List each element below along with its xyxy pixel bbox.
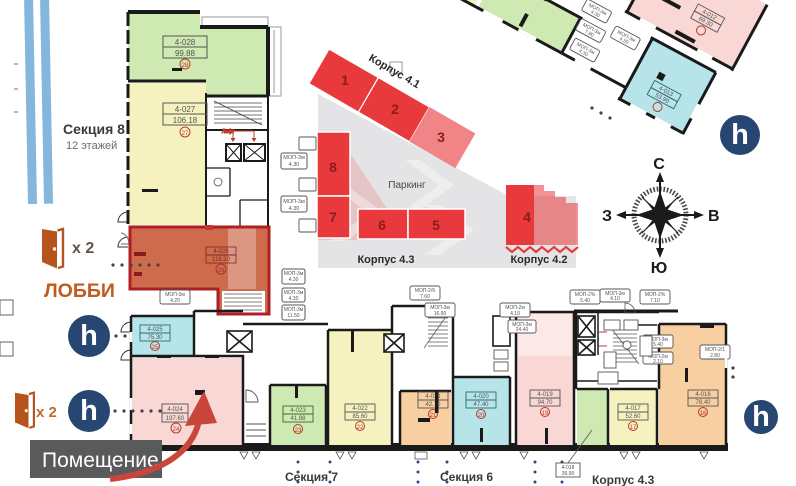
svg-text:4-017: 4-017	[625, 406, 641, 412]
svg-text:7.60: 7.60	[420, 294, 430, 300]
svg-text:25: 25	[152, 345, 159, 351]
svg-text:Лифт: Лифт	[222, 129, 235, 135]
svg-text:197.60: 197.60	[166, 416, 185, 422]
svg-text:С: С	[653, 156, 665, 173]
svg-text:4-020: 4-020	[473, 394, 489, 400]
svg-text:2.10: 2.10	[653, 359, 663, 365]
svg-text:Корпус 4.3: Корпус 4.3	[592, 473, 655, 486]
svg-text:19: 19	[542, 411, 549, 417]
svg-text:106.18: 106.18	[173, 116, 198, 125]
svg-text:МОП-3м: МОП-3м	[283, 199, 305, 205]
svg-text:5.40: 5.40	[580, 298, 590, 304]
svg-text:99.88: 99.88	[175, 49, 196, 58]
svg-text:х 2: х 2	[36, 404, 57, 421]
svg-text:х 2: х 2	[72, 240, 94, 257]
svg-text:7: 7	[329, 209, 337, 225]
svg-text:4.30: 4.30	[289, 206, 300, 212]
svg-text:42.10: 42.10	[425, 402, 441, 408]
svg-text:2.80: 2.80	[710, 353, 720, 359]
svg-text:26: 26	[218, 268, 225, 274]
svg-text:4-024: 4-024	[167, 407, 183, 413]
svg-text:23: 23	[295, 428, 302, 434]
svg-text:20: 20	[478, 413, 485, 419]
svg-text:47.40: 47.40	[473, 402, 489, 408]
svg-text:85.60: 85.60	[352, 414, 368, 420]
svg-text:4-025: 4-025	[147, 327, 163, 333]
svg-text:Корпус 4.2: Корпус 4.2	[510, 254, 567, 266]
svg-text:78.40: 78.40	[695, 400, 711, 406]
svg-text:6: 6	[378, 217, 386, 233]
svg-text:4-026: 4-026	[213, 249, 229, 255]
svg-text:27: 27	[182, 131, 189, 137]
svg-text:75.30: 75.30	[147, 335, 163, 341]
svg-text:39.90: 39.90	[562, 471, 575, 477]
svg-text:h: h	[80, 395, 98, 427]
svg-text:41.88: 41.88	[290, 416, 306, 422]
svg-text:4-019: 4-019	[537, 392, 553, 398]
svg-text:Паркинг: Паркинг	[388, 180, 426, 191]
svg-text:24.40: 24.40	[516, 327, 529, 333]
svg-text:4.30: 4.30	[289, 296, 299, 302]
svg-text:11.50: 11.50	[287, 313, 299, 319]
svg-text:Секция 7: Секция 7	[285, 470, 338, 484]
svg-text:5: 5	[432, 217, 440, 233]
svg-text:4: 4	[523, 209, 531, 225]
svg-text:4.30: 4.30	[289, 277, 299, 283]
svg-text:28: 28	[182, 63, 189, 69]
svg-text:4-028: 4-028	[175, 38, 196, 47]
svg-text:94.70: 94.70	[537, 400, 553, 406]
svg-text:7.10: 7.10	[650, 298, 660, 304]
svg-text:4-027: 4-027	[175, 105, 196, 114]
svg-text:h: h	[80, 320, 98, 352]
svg-text:4-022: 4-022	[352, 406, 368, 412]
svg-text:Секция 6: Секция 6	[440, 470, 493, 484]
svg-text:21: 21	[430, 413, 437, 419]
svg-text:3: 3	[437, 129, 445, 145]
svg-text:4.30: 4.30	[289, 162, 300, 168]
svg-text:8: 8	[329, 159, 337, 175]
svg-text:4.10: 4.10	[610, 296, 620, 302]
svg-text:2: 2	[391, 101, 399, 117]
svg-text:52.60: 52.60	[625, 414, 641, 420]
svg-text:4.20: 4.20	[170, 298, 180, 304]
svg-text:h: h	[752, 401, 770, 433]
svg-text:1: 1	[341, 72, 349, 88]
svg-text:Помещение: Помещение	[42, 449, 159, 472]
svg-text:В: В	[708, 208, 720, 225]
svg-text:22: 22	[357, 425, 364, 431]
svg-text:17: 17	[630, 425, 637, 431]
svg-text:16.90: 16.90	[434, 311, 447, 317]
svg-text:Корпус 4.3: Корпус 4.3	[357, 254, 414, 266]
svg-text:12 этажей: 12 этажей	[66, 140, 117, 152]
svg-text:Секция 8: Секция 8	[63, 121, 125, 137]
svg-text:24: 24	[173, 427, 180, 433]
svg-text:4-016: 4-016	[695, 392, 711, 398]
svg-text:16: 16	[700, 411, 707, 417]
svg-text:h: h	[731, 119, 749, 151]
svg-text:5.40: 5.40	[653, 342, 663, 348]
svg-text:Ю: Ю	[651, 260, 668, 277]
svg-text:116.20: 116.20	[212, 257, 231, 263]
svg-text:ЛОББИ: ЛОББИ	[44, 280, 115, 302]
svg-text:МОП-3м: МОП-3м	[283, 155, 305, 161]
svg-text:4-021: 4-021	[425, 394, 441, 400]
svg-text:З: З	[602, 208, 612, 225]
svg-text:4-023: 4-023	[290, 408, 306, 414]
svg-text:4.10: 4.10	[510, 311, 520, 317]
